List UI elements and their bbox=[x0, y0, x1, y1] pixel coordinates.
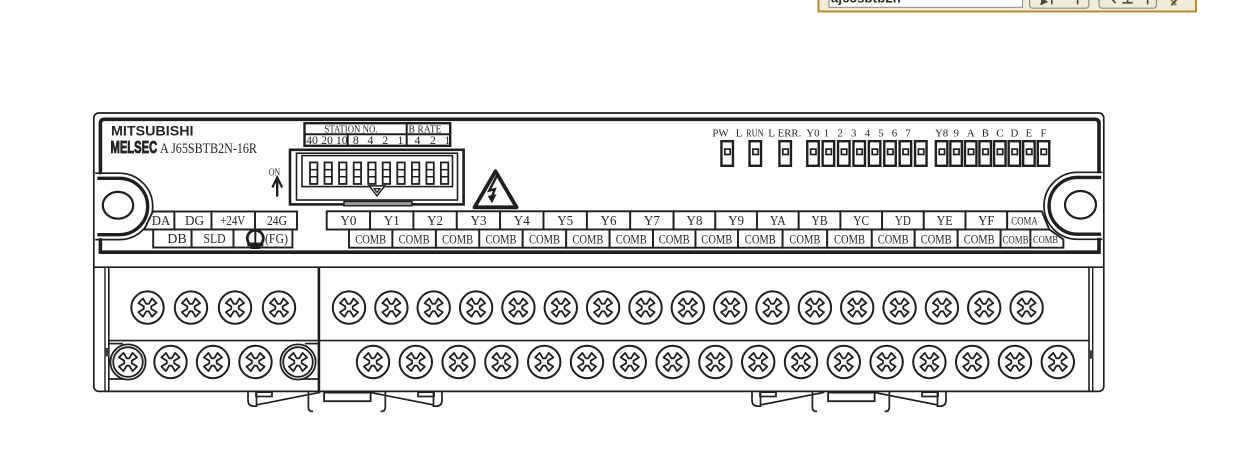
svg-text:YC: YC bbox=[853, 213, 869, 228]
svg-text:COMB: COMB bbox=[616, 232, 647, 246]
svg-text:40: 40 bbox=[306, 133, 318, 147]
svg-text:COMB: COMB bbox=[834, 232, 865, 246]
svg-text:COMB: COMB bbox=[442, 232, 473, 246]
svg-text:Y1: Y1 bbox=[384, 213, 400, 228]
svg-text:Y3: Y3 bbox=[471, 213, 487, 228]
svg-text:YD: YD bbox=[895, 213, 911, 228]
svg-text:Y8: Y8 bbox=[935, 128, 948, 140]
svg-text:COMB: COMB bbox=[1033, 235, 1058, 246]
svg-text:MITSUBISHI: MITSUBISHI bbox=[111, 123, 194, 139]
svg-text:1: 1 bbox=[445, 133, 451, 147]
svg-text:DG: DG bbox=[185, 213, 204, 228]
svg-text:C: C bbox=[996, 128, 1003, 140]
svg-text:Y0: Y0 bbox=[340, 213, 356, 228]
svg-text:YB: YB bbox=[812, 213, 828, 228]
svg-text:COMB: COMB bbox=[789, 232, 820, 246]
svg-text:L: L bbox=[768, 128, 775, 140]
svg-text:A J65SBTB2N-16R: A J65SBTB2N-16R bbox=[160, 141, 257, 157]
svg-text:MELSEC: MELSEC bbox=[111, 139, 158, 158]
svg-text:COMB: COMB bbox=[659, 232, 690, 246]
svg-text:COMB: COMB bbox=[572, 232, 603, 246]
svg-text:YE: YE bbox=[937, 213, 953, 228]
svg-text:4: 4 bbox=[415, 133, 421, 147]
svg-text:+24V: +24V bbox=[220, 213, 245, 228]
svg-text:YA: YA bbox=[770, 213, 786, 228]
svg-text:2: 2 bbox=[837, 128, 842, 140]
svg-text:DA: DA bbox=[152, 213, 171, 228]
svg-text:4: 4 bbox=[367, 133, 373, 147]
svg-text:4: 4 bbox=[865, 128, 871, 140]
svg-text:D: D bbox=[1010, 128, 1018, 140]
svg-text:RUN: RUN bbox=[746, 128, 764, 140]
svg-text:1: 1 bbox=[397, 133, 403, 147]
svg-text:(FG): (FG) bbox=[265, 231, 288, 246]
svg-text:DB: DB bbox=[167, 231, 187, 246]
svg-text:Y7: Y7 bbox=[644, 213, 660, 228]
svg-text:B: B bbox=[982, 128, 989, 140]
svg-text:E: E bbox=[1026, 128, 1033, 140]
svg-text:COMA: COMA bbox=[1011, 216, 1038, 228]
svg-text:ERR.: ERR. bbox=[778, 128, 802, 140]
svg-text:Y8: Y8 bbox=[686, 213, 702, 228]
svg-text:COMB: COMB bbox=[529, 232, 560, 246]
svg-text:9: 9 bbox=[953, 128, 958, 140]
svg-text:3: 3 bbox=[851, 128, 856, 140]
svg-text:SLD: SLD bbox=[204, 231, 226, 246]
svg-text:ON: ON bbox=[269, 167, 281, 178]
svg-text:2: 2 bbox=[382, 133, 388, 147]
svg-text:aj65sbtb2n: aj65sbtb2n bbox=[831, 0, 901, 6]
svg-text:24G: 24G bbox=[267, 213, 287, 228]
svg-text:PW: PW bbox=[712, 128, 729, 140]
svg-text:Y4: Y4 bbox=[514, 213, 530, 228]
svg-text:Y5: Y5 bbox=[557, 213, 573, 228]
svg-text:COMB: COMB bbox=[486, 232, 517, 246]
svg-text:Y6: Y6 bbox=[601, 213, 617, 228]
svg-text:10: 10 bbox=[336, 133, 348, 147]
svg-text:Y0: Y0 bbox=[806, 128, 819, 140]
svg-text:A: A bbox=[967, 128, 975, 140]
svg-text:7: 7 bbox=[905, 128, 911, 140]
svg-text:Y2: Y2 bbox=[427, 213, 443, 228]
svg-text:B RATE: B RATE bbox=[409, 125, 442, 136]
svg-text:COMB: COMB bbox=[878, 232, 909, 246]
svg-text:YF: YF bbox=[978, 213, 994, 228]
svg-text:Y9: Y9 bbox=[728, 213, 744, 228]
svg-text:20: 20 bbox=[321, 133, 333, 147]
svg-text:F: F bbox=[1040, 128, 1046, 140]
svg-text:1: 1 bbox=[824, 128, 829, 140]
svg-text:COMB: COMB bbox=[745, 232, 776, 246]
svg-text:COMB: COMB bbox=[355, 232, 386, 246]
svg-text:L: L bbox=[736, 128, 743, 140]
svg-text:COMB: COMB bbox=[921, 232, 952, 246]
svg-text:COMB: COMB bbox=[399, 232, 430, 246]
svg-text:5: 5 bbox=[878, 128, 883, 140]
svg-text:COMB: COMB bbox=[1003, 234, 1029, 246]
svg-text:COMB: COMB bbox=[701, 232, 732, 246]
svg-text:8: 8 bbox=[353, 133, 359, 147]
svg-text:2: 2 bbox=[430, 133, 436, 147]
svg-text:COMB: COMB bbox=[964, 232, 995, 246]
svg-text:6: 6 bbox=[892, 128, 898, 140]
